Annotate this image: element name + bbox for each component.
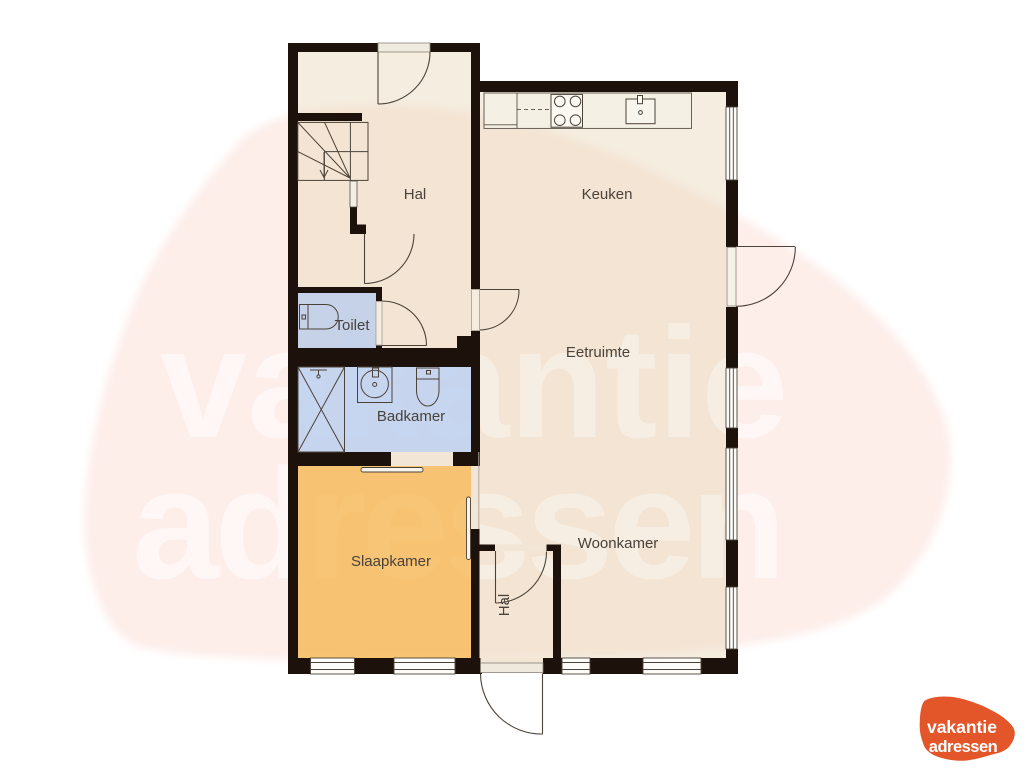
svg-text:Badkamer: Badkamer <box>377 408 445 425</box>
svg-text:Hal: Hal <box>404 186 427 203</box>
svg-text:Eetruimte: Eetruimte <box>566 344 630 361</box>
svg-text:Hal: Hal <box>496 594 513 617</box>
svg-text:Woonkamer: Woonkamer <box>578 535 659 552</box>
svg-text:Keuken: Keuken <box>582 186 633 203</box>
svg-text:Slaapkamer: Slaapkamer <box>351 553 431 570</box>
svg-text:Toilet: Toilet <box>334 317 370 334</box>
svg-text:adressen: adressen <box>929 738 998 756</box>
svg-text:vakantie: vakantie <box>927 717 997 737</box>
